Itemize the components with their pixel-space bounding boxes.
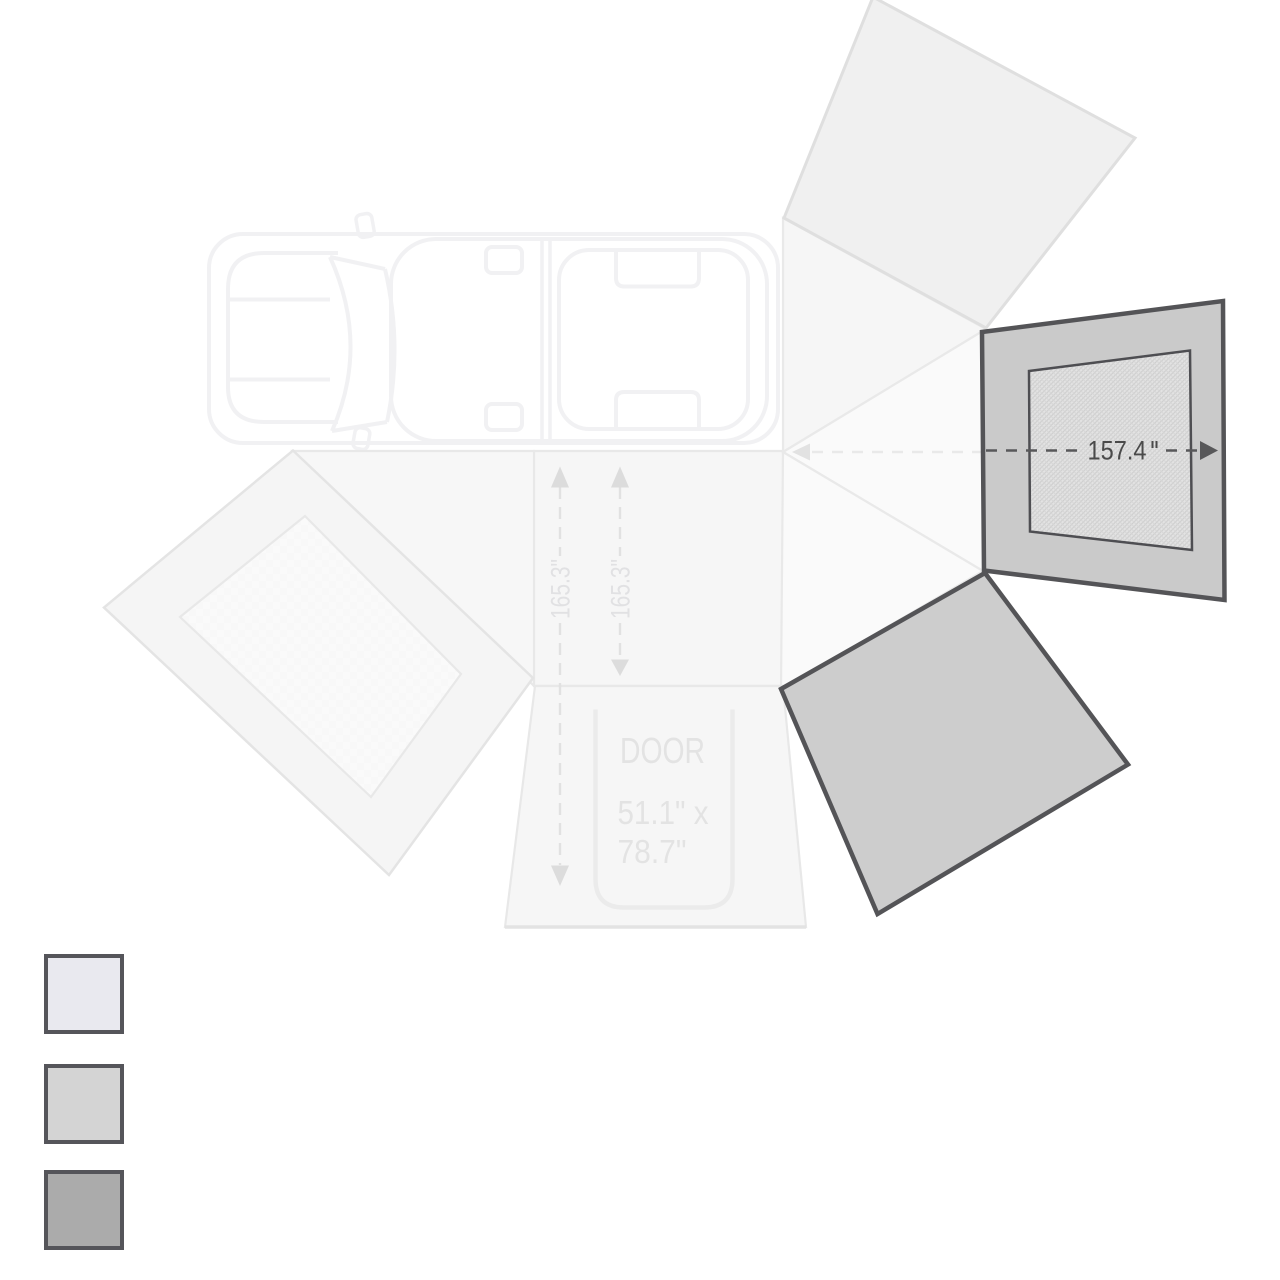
svg-text:DOOR: DOOR — [620, 730, 705, 771]
svg-text:157.4: 157.4 — [1088, 436, 1147, 466]
svg-text:165.3": 165.3" — [606, 559, 636, 619]
svg-text:51.1" x: 51.1" x — [618, 794, 709, 831]
svg-text:165.3": 165.3" — [546, 559, 576, 619]
svg-text:78.7": 78.7" — [618, 833, 687, 870]
